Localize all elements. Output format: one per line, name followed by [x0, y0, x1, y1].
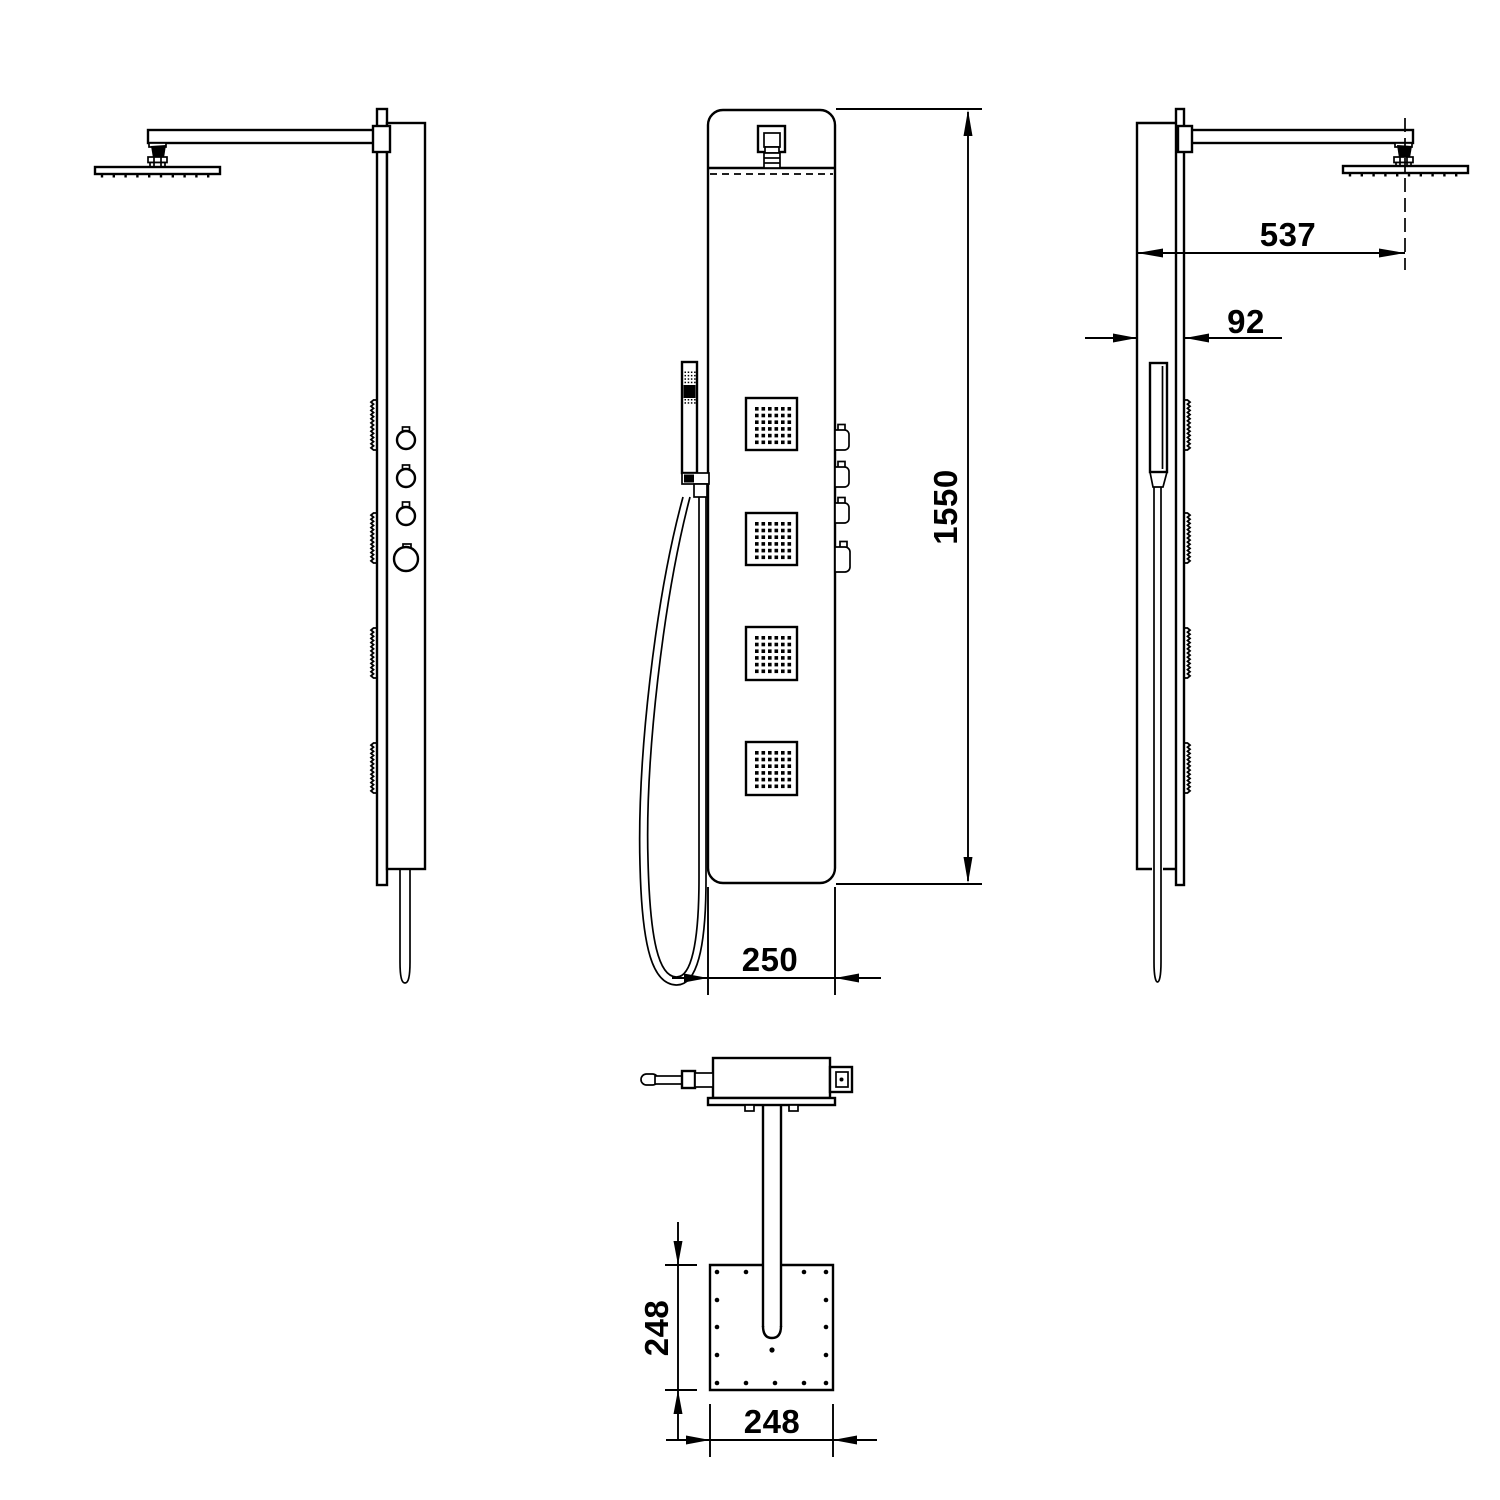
wand-top-mount [695, 1073, 713, 1087]
knob-profiles-right-edge [835, 425, 850, 573]
arrowhead-down [964, 857, 973, 883]
dimension-head-width: 248 [666, 1403, 877, 1457]
wand-top-nut [682, 1071, 695, 1088]
arrowhead-left [1185, 334, 1209, 343]
dimension-panel-width: 250 [672, 887, 881, 995]
wand-holder-clip [684, 475, 694, 483]
dimension-label-248-vertical: 248 [638, 1300, 675, 1357]
hand-shower-wand-side [1150, 363, 1167, 472]
shower-panel-technical-drawing: 1550 250 [0, 0, 1500, 1500]
wand-top-handle [655, 1076, 685, 1084]
knob-1 [397, 431, 415, 449]
knob-profile-2 [835, 467, 849, 487]
hose-inner [648, 497, 699, 977]
hose-tail [400, 869, 410, 983]
dimension-label-250: 250 [742, 941, 799, 978]
jet-bracket-left [745, 1105, 754, 1111]
top-view: 248 248 [638, 1058, 877, 1457]
panel-body-side [387, 123, 425, 869]
jet-bracket-right [789, 1105, 798, 1111]
arrowhead-right [1113, 334, 1137, 343]
dimension-label-1550: 1550 [927, 469, 964, 544]
panel-front-plate-edge [1176, 109, 1184, 885]
knob-profile-diverter [835, 547, 850, 572]
connector-inner [764, 133, 780, 147]
knob-profile-1 [835, 430, 849, 450]
side-view-left: 537 92 [1085, 109, 1468, 982]
shower-arm [1184, 130, 1413, 143]
rain-head-nozzle-dots [715, 1270, 829, 1386]
arrowhead-up [674, 1390, 683, 1414]
knob-3 [397, 507, 415, 525]
arrowhead-right [1379, 249, 1405, 258]
wand-grip-band [684, 385, 696, 398]
hose-connector [694, 484, 707, 497]
arrowhead-left [835, 974, 859, 983]
wand-taper [1150, 472, 1167, 487]
front-view: 1550 250 [640, 109, 982, 995]
connector-collar [765, 147, 779, 153]
arrowhead-right [684, 974, 708, 983]
rain-head-plan [710, 1265, 833, 1390]
rain-shower-head-edge [95, 167, 220, 174]
head-swivel-joint [151, 145, 166, 158]
hose-side [1154, 487, 1161, 982]
connector-neck [764, 153, 780, 168]
hand-shower [640, 362, 709, 985]
dimension-label-92: 92 [1227, 303, 1265, 340]
arm-top-rounded-end [763, 1326, 781, 1338]
technical-drawing-page: 1550 250 [0, 0, 1500, 1500]
arrowhead-left [833, 1436, 857, 1445]
knob-top-dot [840, 1078, 844, 1082]
arrowhead-down [674, 1241, 683, 1265]
dimension-overall-height: 1550 [836, 109, 982, 884]
arrowhead-up [964, 110, 973, 136]
side-view-right [95, 109, 425, 983]
dimension-label-248-horizontal: 248 [744, 1403, 801, 1440]
hose-outer [640, 497, 706, 985]
panel-front-plate-edge [377, 109, 387, 885]
panel-front-flange-top [708, 1098, 835, 1105]
arm-wall-mount [373, 126, 390, 152]
panel-top-body [713, 1058, 830, 1098]
dimension-head-depth: 248 [638, 1222, 697, 1440]
dimension-label-537: 537 [1260, 216, 1317, 253]
panel-body-side [1137, 123, 1176, 869]
arm-wall-mount [1178, 126, 1192, 152]
knob-diverter [394, 547, 418, 571]
shower-arm [148, 130, 380, 143]
arrowhead-right [686, 1436, 710, 1445]
knob-2 [397, 469, 415, 487]
knob-profile-3 [835, 503, 849, 523]
arrowhead-left [1137, 249, 1163, 258]
